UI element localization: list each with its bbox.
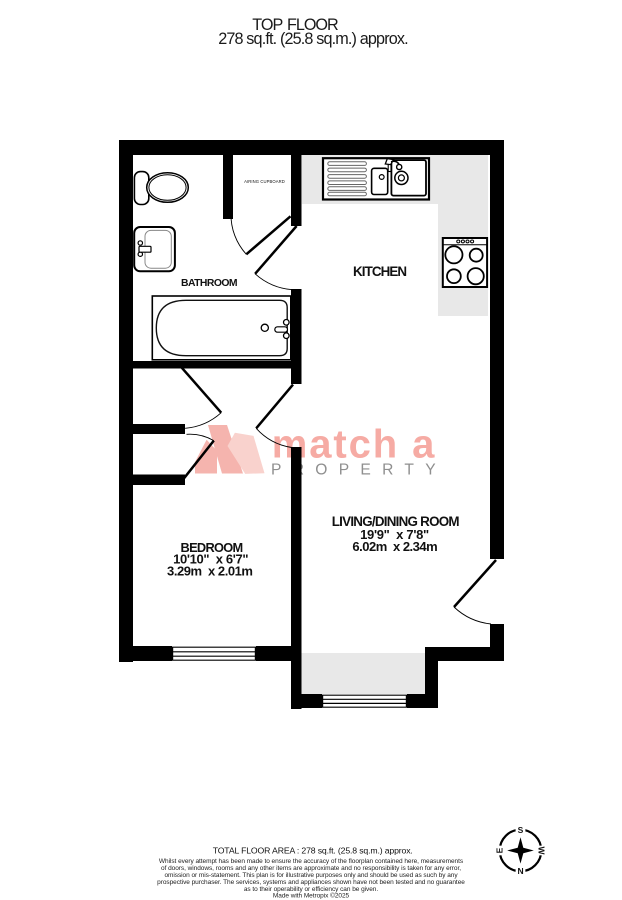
svg-text:omission or mis-statement. Thi: omission or mis-statement. This plan is … bbox=[164, 872, 458, 879]
svg-text:6.02m x 2.34m: 6.02m x 2.34m bbox=[352, 539, 437, 554]
svg-text:AIRING CUPBOARD: AIRING CUPBOARD bbox=[244, 179, 285, 184]
svg-text:TOTAL FLOOR AREA : 278 sq.ft.: TOTAL FLOOR AREA : 278 sq.ft. (25.8 sq.m… bbox=[213, 845, 413, 855]
svg-text:W: W bbox=[536, 846, 546, 855]
svg-text:of doors, windows, rooms and a: of doors, windows, rooms and any other i… bbox=[161, 865, 461, 872]
svg-text:prospective purchaser. The ser: prospective purchaser. The services, sys… bbox=[157, 879, 465, 886]
svg-text:3.29m x 2.01m: 3.29m x 2.01m bbox=[167, 564, 253, 579]
svg-text:278 sq.ft. (25.8 sq.m.) approx: 278 sq.ft. (25.8 sq.m.) approx. bbox=[218, 30, 408, 48]
svg-text:BATHROOM: BATHROOM bbox=[181, 278, 237, 289]
svg-text:Made with Metropix ©2025: Made with Metropix ©2025 bbox=[273, 892, 350, 900]
svg-text:E: E bbox=[495, 847, 505, 853]
svg-text:Whilst every attempt has been: Whilst every attempt has been made to en… bbox=[159, 858, 464, 865]
svg-text:KITCHEN: KITCHEN bbox=[353, 264, 406, 279]
svg-text:N: N bbox=[517, 866, 523, 876]
svg-text:S: S bbox=[518, 825, 524, 835]
